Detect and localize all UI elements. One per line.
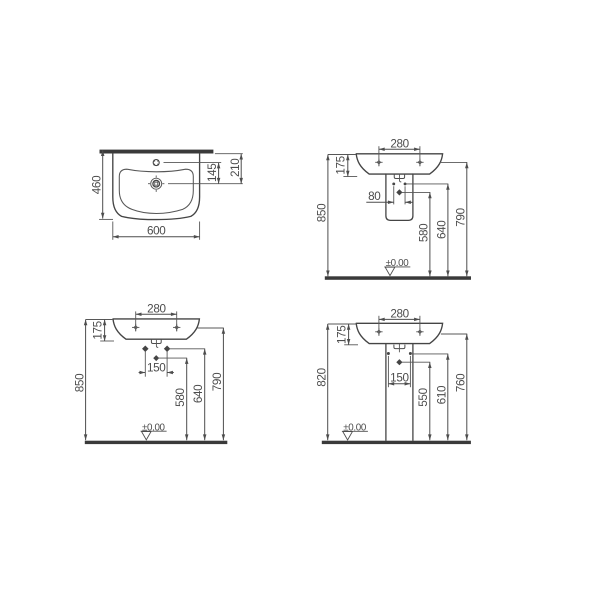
svg-text:790: 790	[211, 372, 224, 391]
svg-text:460: 460	[90, 175, 103, 194]
svg-text:850: 850	[316, 203, 329, 222]
svg-text:580: 580	[417, 223, 430, 242]
svg-text:145: 145	[206, 163, 219, 182]
svg-text:550: 550	[417, 387, 430, 406]
svg-text:760: 760	[454, 373, 467, 392]
svg-text:600: 600	[147, 225, 166, 238]
svg-text:640: 640	[192, 384, 205, 403]
svg-text:790: 790	[455, 207, 468, 226]
svg-text:610: 610	[436, 385, 449, 404]
svg-text:850: 850	[73, 373, 86, 392]
svg-text:820: 820	[315, 367, 328, 386]
svg-text:150: 150	[147, 361, 166, 374]
svg-text:280: 280	[390, 138, 409, 151]
svg-text:80: 80	[368, 190, 381, 203]
svg-text:580: 580	[174, 388, 187, 407]
svg-text:175: 175	[92, 320, 105, 339]
svg-text:280: 280	[390, 308, 409, 321]
svg-text:175: 175	[335, 155, 348, 174]
svg-text:640: 640	[435, 220, 448, 239]
svg-text:280: 280	[147, 303, 166, 316]
svg-text:150: 150	[390, 372, 409, 385]
svg-text:210: 210	[229, 158, 242, 177]
svg-text:175: 175	[335, 325, 348, 344]
